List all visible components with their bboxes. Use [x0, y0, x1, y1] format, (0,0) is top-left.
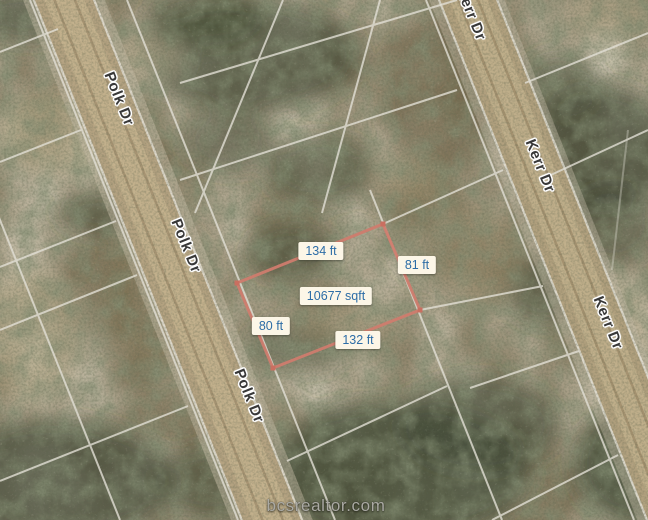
parcel-dim-left: 80 ft	[252, 317, 290, 335]
satellite-imagery	[0, 0, 648, 520]
parcel-dim-top: 134 ft	[298, 242, 343, 260]
map-canvas[interactable]: Polk Dr Polk Dr Polk Dr Kerr Dr Kerr Dr …	[0, 0, 648, 520]
watermark: bcsrealtor.com	[267, 496, 386, 516]
parcel-dim-right: 81 ft	[398, 256, 436, 274]
parcel-dim-bottom: 132 ft	[335, 331, 380, 349]
parcel-area-label: 10677 sqft	[300, 287, 372, 305]
